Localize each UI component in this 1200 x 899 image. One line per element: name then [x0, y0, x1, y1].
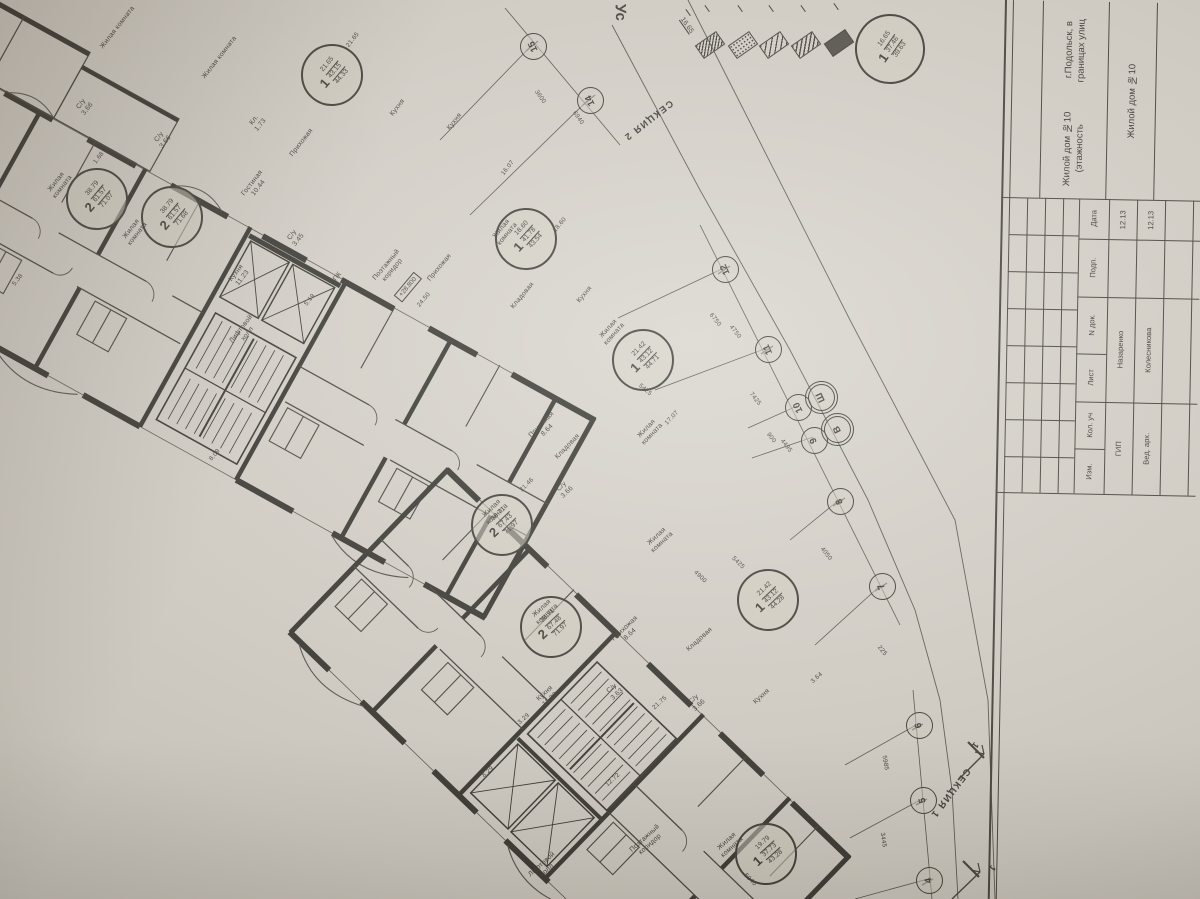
legend-cropped-title: Ус: [612, 4, 630, 21]
photographed-floor-plan-sheet: 2 38.79 61.57 71.07 2 38.79 61.57 71.68 …: [0, 0, 1200, 899]
stamp-col-podp: Подп.: [1077, 238, 1108, 297]
legend-hatch-swatch: [759, 31, 789, 59]
legend-tick: [704, 5, 710, 12]
legend-hatch-swatch: [791, 31, 821, 59]
gip-role: ГИП: [1104, 402, 1134, 495]
sheet-title: Жилой дом №10: [1107, 2, 1157, 200]
stamp-col-ndok: N док.: [1076, 296, 1107, 354]
drawing-scene: 2 38.79 61.57 71.07 2 38.79 61.57 71.68 …: [0, 0, 1200, 899]
stamp-col-list: Лист: [1075, 353, 1106, 402]
legend-hatch-swatch: [824, 29, 854, 57]
legend-tick: [768, 5, 774, 12]
stamp-col-izm: Изм.: [1074, 448, 1105, 494]
arch-date: 12.13: [1136, 200, 1165, 241]
gip-date: 12.13: [1108, 199, 1137, 240]
legend-tick: [737, 5, 743, 12]
project-title-line2: г.Подольск, в границах улиц: [1062, 1, 1091, 99]
legend-hatch-swatch: [728, 31, 758, 59]
stamp-col-data: Дата: [1078, 198, 1109, 239]
arch-role: Вед. арх.: [1132, 403, 1162, 496]
sheet-title-text: Жилой дом №10: [1125, 64, 1139, 139]
title-block: Жилой дом №10 (этажность г.Подольск, в г…: [988, 0, 1200, 899]
legend-hatch-swatch: [695, 31, 725, 59]
arch-name: Колесникова: [1133, 298, 1163, 404]
legend-tick: [833, 3, 839, 10]
stamp-col-koluch: Кол. уч: [1074, 401, 1105, 449]
gip-name: Назаренко: [1105, 297, 1135, 403]
legend-tick: [685, 9, 691, 16]
legend-tick: [800, 5, 806, 12]
project-title: Жилой дом №10 (этажность г.Подольск, в г…: [1041, 1, 1109, 199]
legend-reference-value: 16.65: [679, 16, 695, 34]
project-title-line1: Жилой дом №10 (этажность: [1060, 99, 1089, 199]
